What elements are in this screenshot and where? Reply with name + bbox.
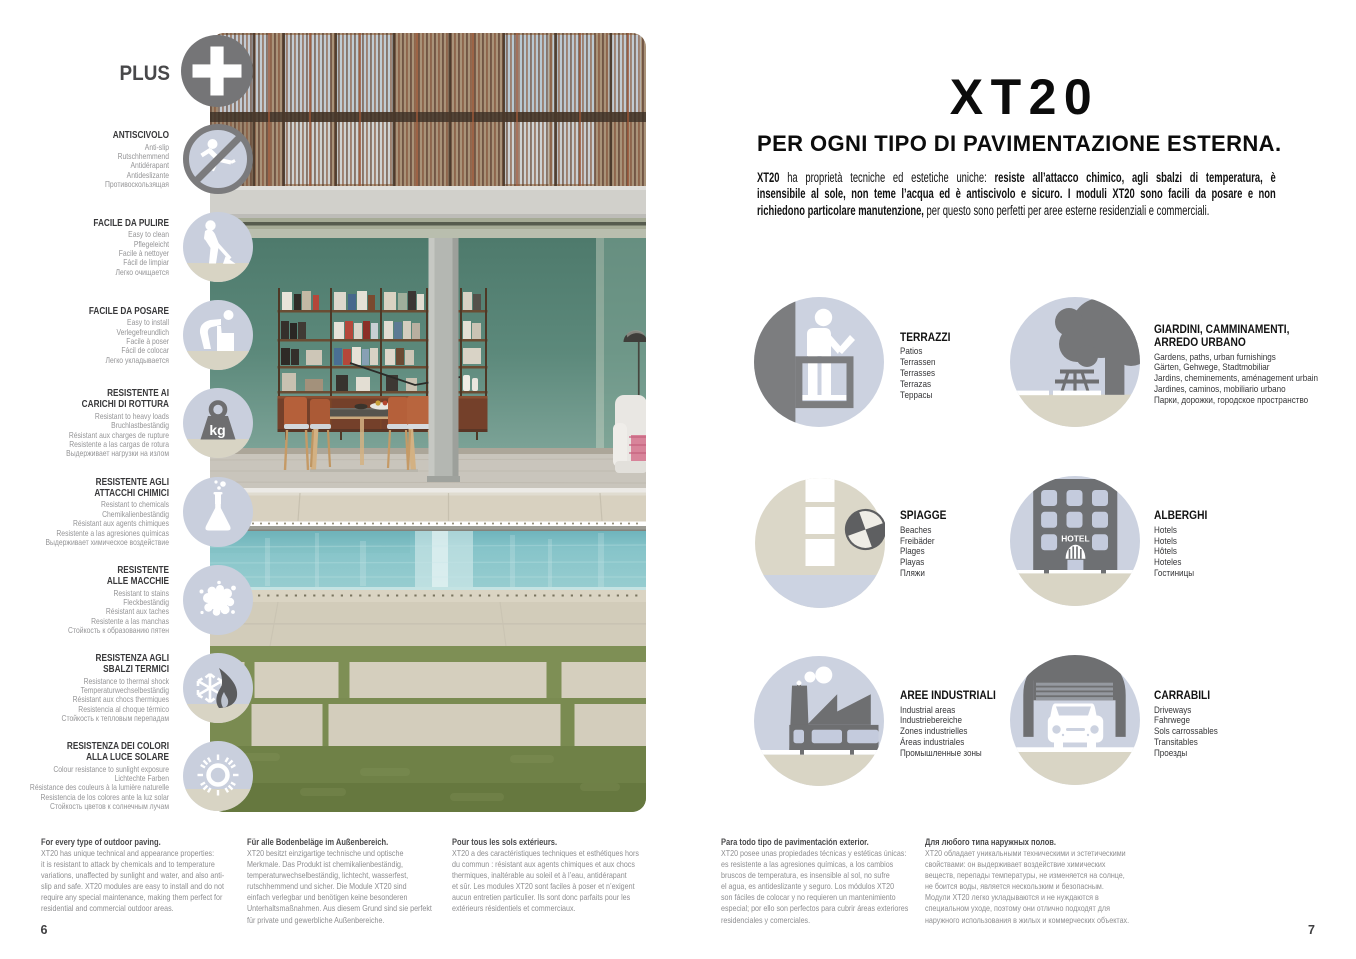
svg-text:HOTEL: HOTEL xyxy=(1061,534,1089,544)
svg-text:kg: kg xyxy=(209,422,225,438)
